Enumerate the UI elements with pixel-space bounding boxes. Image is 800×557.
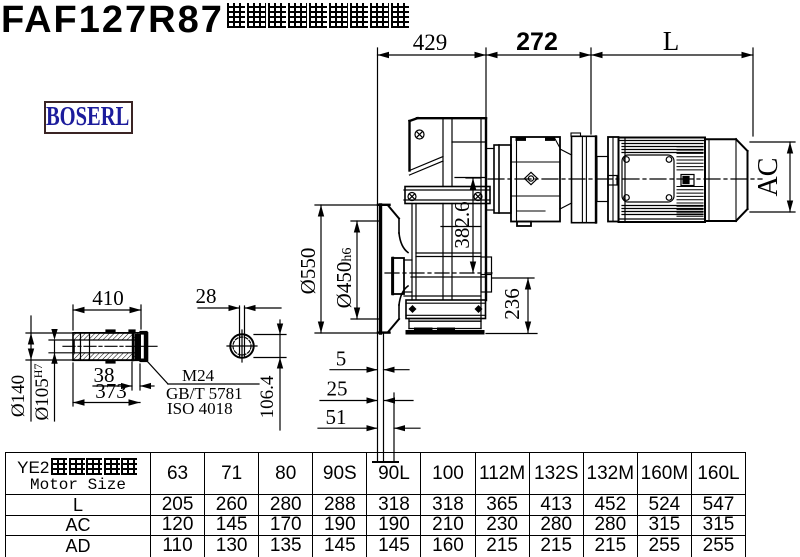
svg-text:Ø450h6: Ø450h6: [332, 248, 356, 309]
svg-text:272: 272: [516, 28, 558, 56]
svg-text:429: 429: [413, 30, 448, 55]
svg-text:382.6: 382.6: [450, 201, 474, 248]
svg-text:AC: AC: [753, 158, 784, 197]
svg-text:25: 25: [327, 377, 348, 401]
svg-text:5: 5: [336, 347, 347, 371]
svg-text:28: 28: [196, 284, 217, 308]
svg-text:Ø140: Ø140: [8, 375, 29, 417]
svg-text:373: 373: [95, 379, 127, 403]
svg-text:106.4: 106.4: [257, 375, 278, 418]
svg-text:410: 410: [92, 286, 124, 310]
svg-text:ISO 4018: ISO 4018: [167, 399, 233, 418]
svg-text:Ø105H7: Ø105H7: [31, 364, 53, 421]
svg-text:M24: M24: [182, 366, 215, 385]
svg-text:Ø550: Ø550: [296, 248, 320, 295]
svg-text:236: 236: [500, 288, 524, 320]
svg-text:51: 51: [326, 405, 347, 429]
svg-text:L: L: [663, 26, 680, 56]
